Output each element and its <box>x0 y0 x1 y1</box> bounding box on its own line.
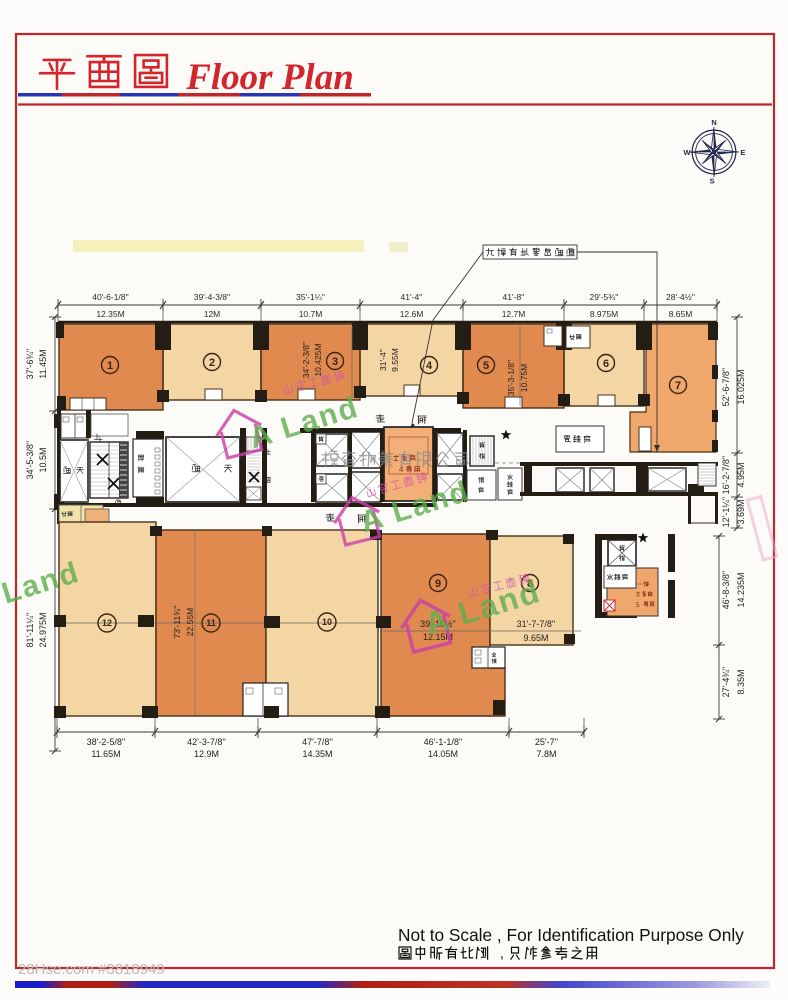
svg-text:28Hse.com #3818949: 28Hse.com #3818949 <box>18 961 165 978</box>
svg-text:12'-1¼'': 12'-1¼'' <box>721 496 731 527</box>
svg-text:10.75M: 10.75M <box>519 364 529 392</box>
svg-text:25'-7'': 25'-7'' <box>535 737 558 747</box>
svg-text:8.65M: 8.65M <box>669 309 693 319</box>
svg-text:27'-4¾'': 27'-4¾'' <box>721 666 731 697</box>
svg-text:6: 6 <box>603 358 609 370</box>
svg-text:46'-1-1/8'': 46'-1-1/8'' <box>424 737 463 747</box>
svg-text:52'-6-7/8'': 52'-6-7/8'' <box>721 367 731 406</box>
svg-text:10.425M: 10.425M <box>313 343 323 376</box>
svg-text:11.45M: 11.45M <box>38 349 48 378</box>
svg-text:31'-4'': 31'-4'' <box>378 349 388 371</box>
svg-text:12.6M: 12.6M <box>400 309 424 319</box>
svg-text:S: S <box>710 177 715 186</box>
svg-text:12.7M: 12.7M <box>502 309 526 319</box>
svg-text:34'-2-3/8'': 34'-2-3/8'' <box>301 341 311 378</box>
svg-text:46'-8-3/8'': 46'-8-3/8'' <box>721 570 731 609</box>
svg-text:9: 9 <box>435 578 441 590</box>
svg-text:9.65M: 9.65M <box>523 633 548 643</box>
svg-text:Floor Plan: Floor Plan <box>185 57 354 98</box>
svg-text:2: 2 <box>209 357 215 369</box>
svg-text:11: 11 <box>206 618 216 628</box>
svg-text:42'-3-7/8'': 42'-3-7/8'' <box>187 737 226 747</box>
svg-text:40'-6-1/8'': 40'-6-1/8'' <box>92 292 129 302</box>
svg-text:12M: 12M <box>204 309 221 319</box>
svg-text:35'-1¼'': 35'-1¼'' <box>296 292 325 302</box>
svg-text:7.8M: 7.8M <box>536 749 556 759</box>
svg-text:81'-11¼'': 81'-11¼'' <box>25 612 35 647</box>
svg-text:4: 4 <box>426 360 433 372</box>
svg-text:16.025M: 16.025M <box>736 369 746 404</box>
svg-text:11.65M: 11.65M <box>91 749 120 759</box>
svg-text:41'-8'': 41'-8'' <box>503 292 525 302</box>
svg-text:37'-6¾'': 37'-6¾'' <box>25 348 35 379</box>
svg-text:8.35M: 8.35M <box>736 669 746 694</box>
svg-text:73'-11¾'': 73'-11¾'' <box>172 605 182 638</box>
svg-text:Not to Scale , For Identificat: Not to Scale , For Identification Purpos… <box>398 925 744 945</box>
svg-text:22.55M: 22.55M <box>185 608 195 636</box>
svg-text:34'-5-3/8'': 34'-5-3/8'' <box>25 440 35 479</box>
svg-text:16'-2-7/8'': 16'-2-7/8'' <box>721 455 731 494</box>
svg-text:28'-4½'': 28'-4½'' <box>666 292 695 302</box>
svg-text:3.69M: 3.69M <box>736 499 746 524</box>
svg-text:38'-2-5/8'': 38'-2-5/8'' <box>87 737 126 747</box>
svg-text:10.7M: 10.7M <box>299 309 323 319</box>
svg-text:39'-4-3/8'': 39'-4-3/8'' <box>194 292 231 302</box>
svg-text:4.95M: 4.95M <box>736 462 746 487</box>
svg-text:29'-5¾'': 29'-5¾'' <box>590 292 619 302</box>
svg-text:8.975M: 8.975M <box>590 309 618 319</box>
svg-text:N: N <box>711 118 716 127</box>
svg-text:3: 3 <box>332 356 338 368</box>
svg-text:41'-4'': 41'-4'' <box>401 292 423 302</box>
svg-text:14.35M: 14.35M <box>302 749 332 759</box>
svg-text:W: W <box>684 148 692 157</box>
svg-text:24.975M: 24.975M <box>38 612 48 647</box>
svg-text:12: 12 <box>102 618 112 628</box>
svg-text:14.235M: 14.235M <box>736 572 746 607</box>
svg-text:12.35M: 12.35M <box>96 309 124 319</box>
svg-text:5: 5 <box>636 602 640 609</box>
svg-text:1: 1 <box>107 360 113 372</box>
svg-text:31'-7-7/8'': 31'-7-7/8'' <box>517 619 556 629</box>
svg-text:12.9M: 12.9M <box>194 749 219 759</box>
svg-text:9.55M: 9.55M <box>390 348 400 372</box>
svg-text:14.05M: 14.05M <box>428 749 458 759</box>
svg-text:10.5M: 10.5M <box>38 447 48 472</box>
svg-text:35'-3-1/8'': 35'-3-1/8'' <box>506 359 516 396</box>
svg-text:,: , <box>500 945 504 961</box>
svg-text:7: 7 <box>675 380 681 392</box>
svg-text:5: 5 <box>483 360 489 372</box>
svg-text:47'-7/8'': 47'-7/8'' <box>302 737 333 747</box>
svg-text:E: E <box>740 148 745 157</box>
svg-text:10: 10 <box>322 617 332 627</box>
